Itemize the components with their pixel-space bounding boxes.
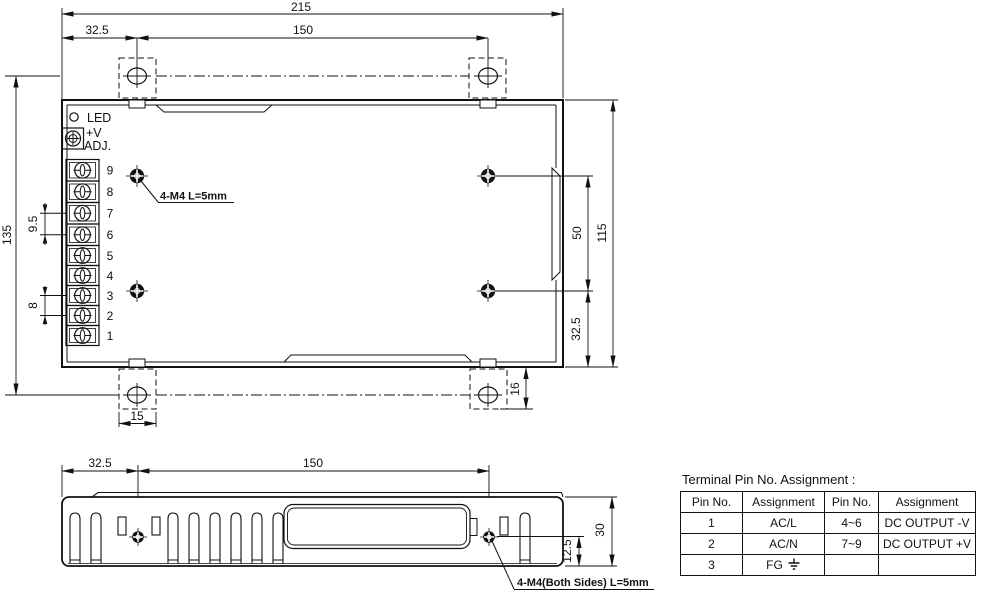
dim-case-height: 30 [593, 523, 607, 537]
pin-table-row: 1 AC/L 4~6 DC OUTPUT -V [681, 513, 976, 534]
bracket-screw-icon [474, 383, 502, 407]
earth-ground-icon [787, 558, 801, 571]
side-body [62, 493, 563, 567]
dim-mount-center-height: 12.5 [560, 539, 574, 563]
dim-side-mount-span-x: 150 [303, 456, 323, 470]
pin-number-cell: 1 [681, 513, 743, 534]
dim-mount-offset-x: 32.5 [85, 23, 109, 37]
pin-table-header: Pin No. [825, 492, 879, 513]
dim-terminal-pitch-output: 9.5 [26, 215, 40, 232]
dim-overall-depth: 135 [0, 225, 14, 245]
dim-mount-offset-y: 32.5 [569, 317, 583, 341]
terminal-number: 4 [107, 269, 114, 283]
datasheet-mechanical-page: LED +V ADJ. [0, 0, 986, 592]
dim-bracket-width: 15 [130, 409, 144, 423]
terminal-number: 3 [107, 289, 114, 303]
dim-bracket-overhang: 16 [508, 382, 522, 396]
pin-number-cell: 3 [681, 555, 743, 576]
assignment-cell: DC OUTPUT +V [879, 534, 976, 555]
terminal-number: 6 [107, 228, 114, 242]
terminal-number: 5 [107, 249, 114, 263]
pin-table-row: 2 AC/N 7~9 DC OUTPUT +V [681, 534, 976, 555]
terminal-number: 1 [107, 329, 114, 343]
assignment-cell: AC/N [743, 534, 825, 555]
pin-table-header: Pin No. [681, 492, 743, 513]
assignment-cell: FG [743, 555, 825, 576]
led-label: LED [87, 111, 111, 125]
pin-assignment-table: Pin No. Assignment Pin No. Assignment 1 … [680, 491, 976, 576]
side-view: 32.5 150 12.5 30 4-M4(Both Sides) L=5mm [62, 456, 654, 590]
pin-number-cell [825, 555, 879, 576]
assignment-cell: AC/L [743, 513, 825, 534]
chassis-outline [62, 100, 563, 367]
bracket-screw-icon [123, 383, 151, 407]
pin-table-header: Assignment [743, 492, 825, 513]
terminal-number: 9 [107, 164, 114, 178]
assignment-cell: DC OUTPUT -V [879, 513, 976, 534]
terminal-number: 8 [107, 185, 114, 199]
pin-number-cell: 4~6 [825, 513, 879, 534]
mounting-note-label: 4-M4 L=5mm [160, 191, 227, 203]
pin-number-cell: 7~9 [825, 534, 879, 555]
pin-table-title: Terminal Pin No. Assignment : [682, 472, 984, 487]
pin-number-cell: 2 [681, 534, 743, 555]
side-vent-louver [552, 168, 560, 280]
assignment-cell [879, 555, 976, 576]
dim-mount-span-x: 150 [293, 23, 313, 37]
dim-terminal-pitch-input: 8 [26, 302, 40, 309]
pin-table-header: Assignment [879, 492, 976, 513]
pin-table-header-row: Pin No. Assignment Pin No. Assignment [681, 492, 976, 513]
side-mounting-note-label: 4-M4(Both Sides) L=5mm [517, 577, 649, 589]
dim-mount-span-y: 50 [570, 226, 584, 240]
dim-case-depth: 115 [595, 223, 609, 242]
bracket-screw-icon [123, 64, 151, 88]
terminal-numbers: 9 8 7 6 5 4 3 2 1 [107, 164, 114, 343]
vadj-label-line1: +V [86, 126, 102, 140]
dim-overall-width: 215 [291, 0, 311, 14]
terminal-number: 7 [107, 207, 114, 221]
top-view: LED +V ADJ. [0, 0, 618, 427]
pin-table-row: 3 FG [681, 555, 976, 576]
pin-assignment-panel: Terminal Pin No. Assignment : Pin No. As… [680, 472, 984, 576]
terminal-number: 2 [107, 309, 114, 323]
bracket-screw-icon [474, 64, 502, 88]
dim-side-mount-offset-x: 32.5 [88, 456, 112, 470]
fg-label: FG [766, 558, 783, 572]
vadj-label-line2: ADJ. [84, 139, 111, 153]
